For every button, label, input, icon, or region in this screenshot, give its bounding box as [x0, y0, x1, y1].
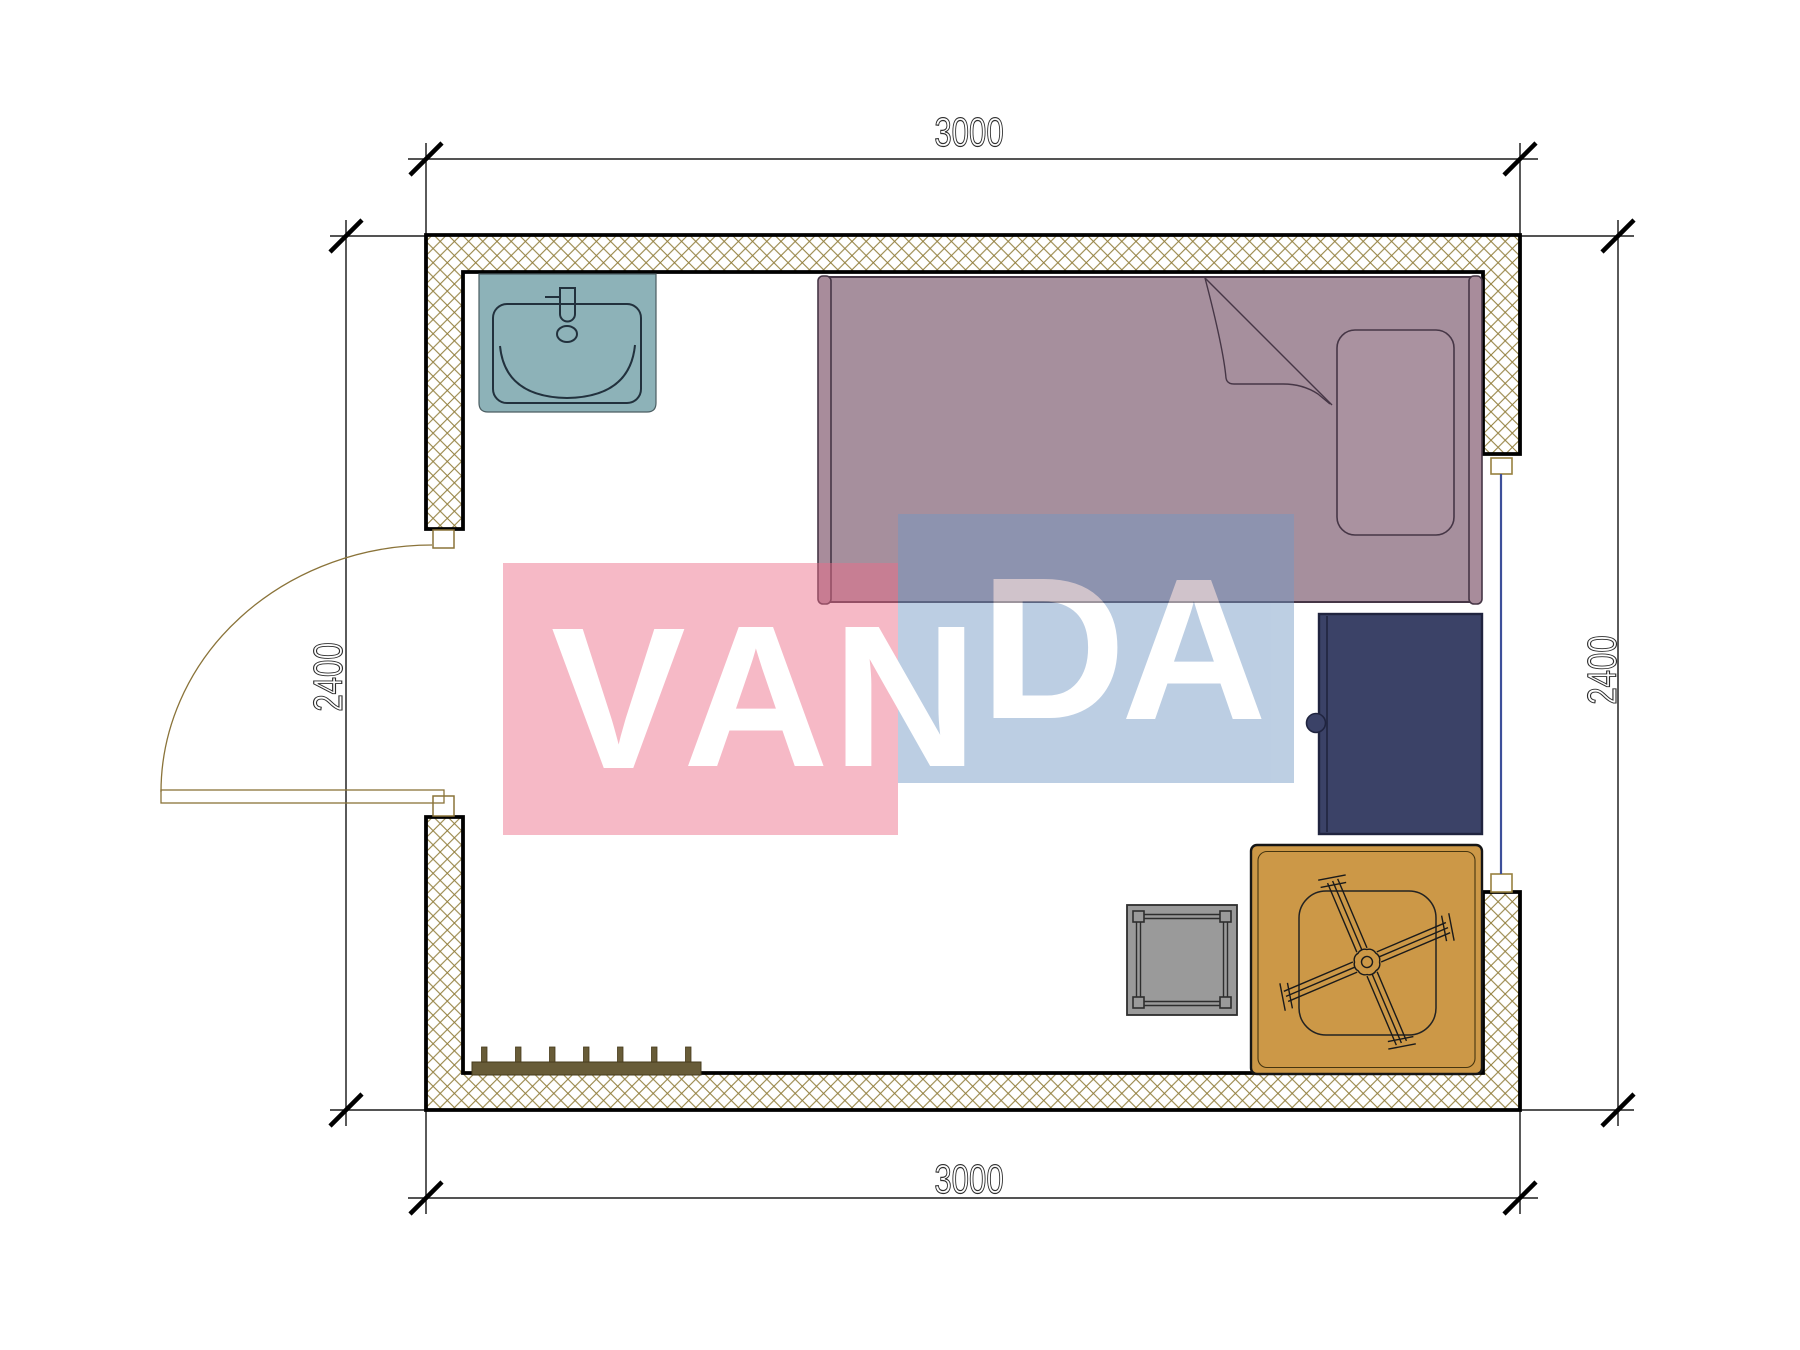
svg-text:D: D	[980, 535, 1126, 761]
svg-text:V: V	[551, 585, 686, 811]
svg-text:2400: 2400	[305, 642, 351, 711]
svg-text:N: N	[832, 583, 978, 809]
svg-text:3000: 3000	[934, 109, 1003, 155]
svg-text:3000: 3000	[934, 1156, 1003, 1202]
svg-text:2400: 2400	[1579, 635, 1625, 704]
svg-text:A: A	[1121, 536, 1267, 762]
svg-text:A: A	[683, 583, 829, 809]
